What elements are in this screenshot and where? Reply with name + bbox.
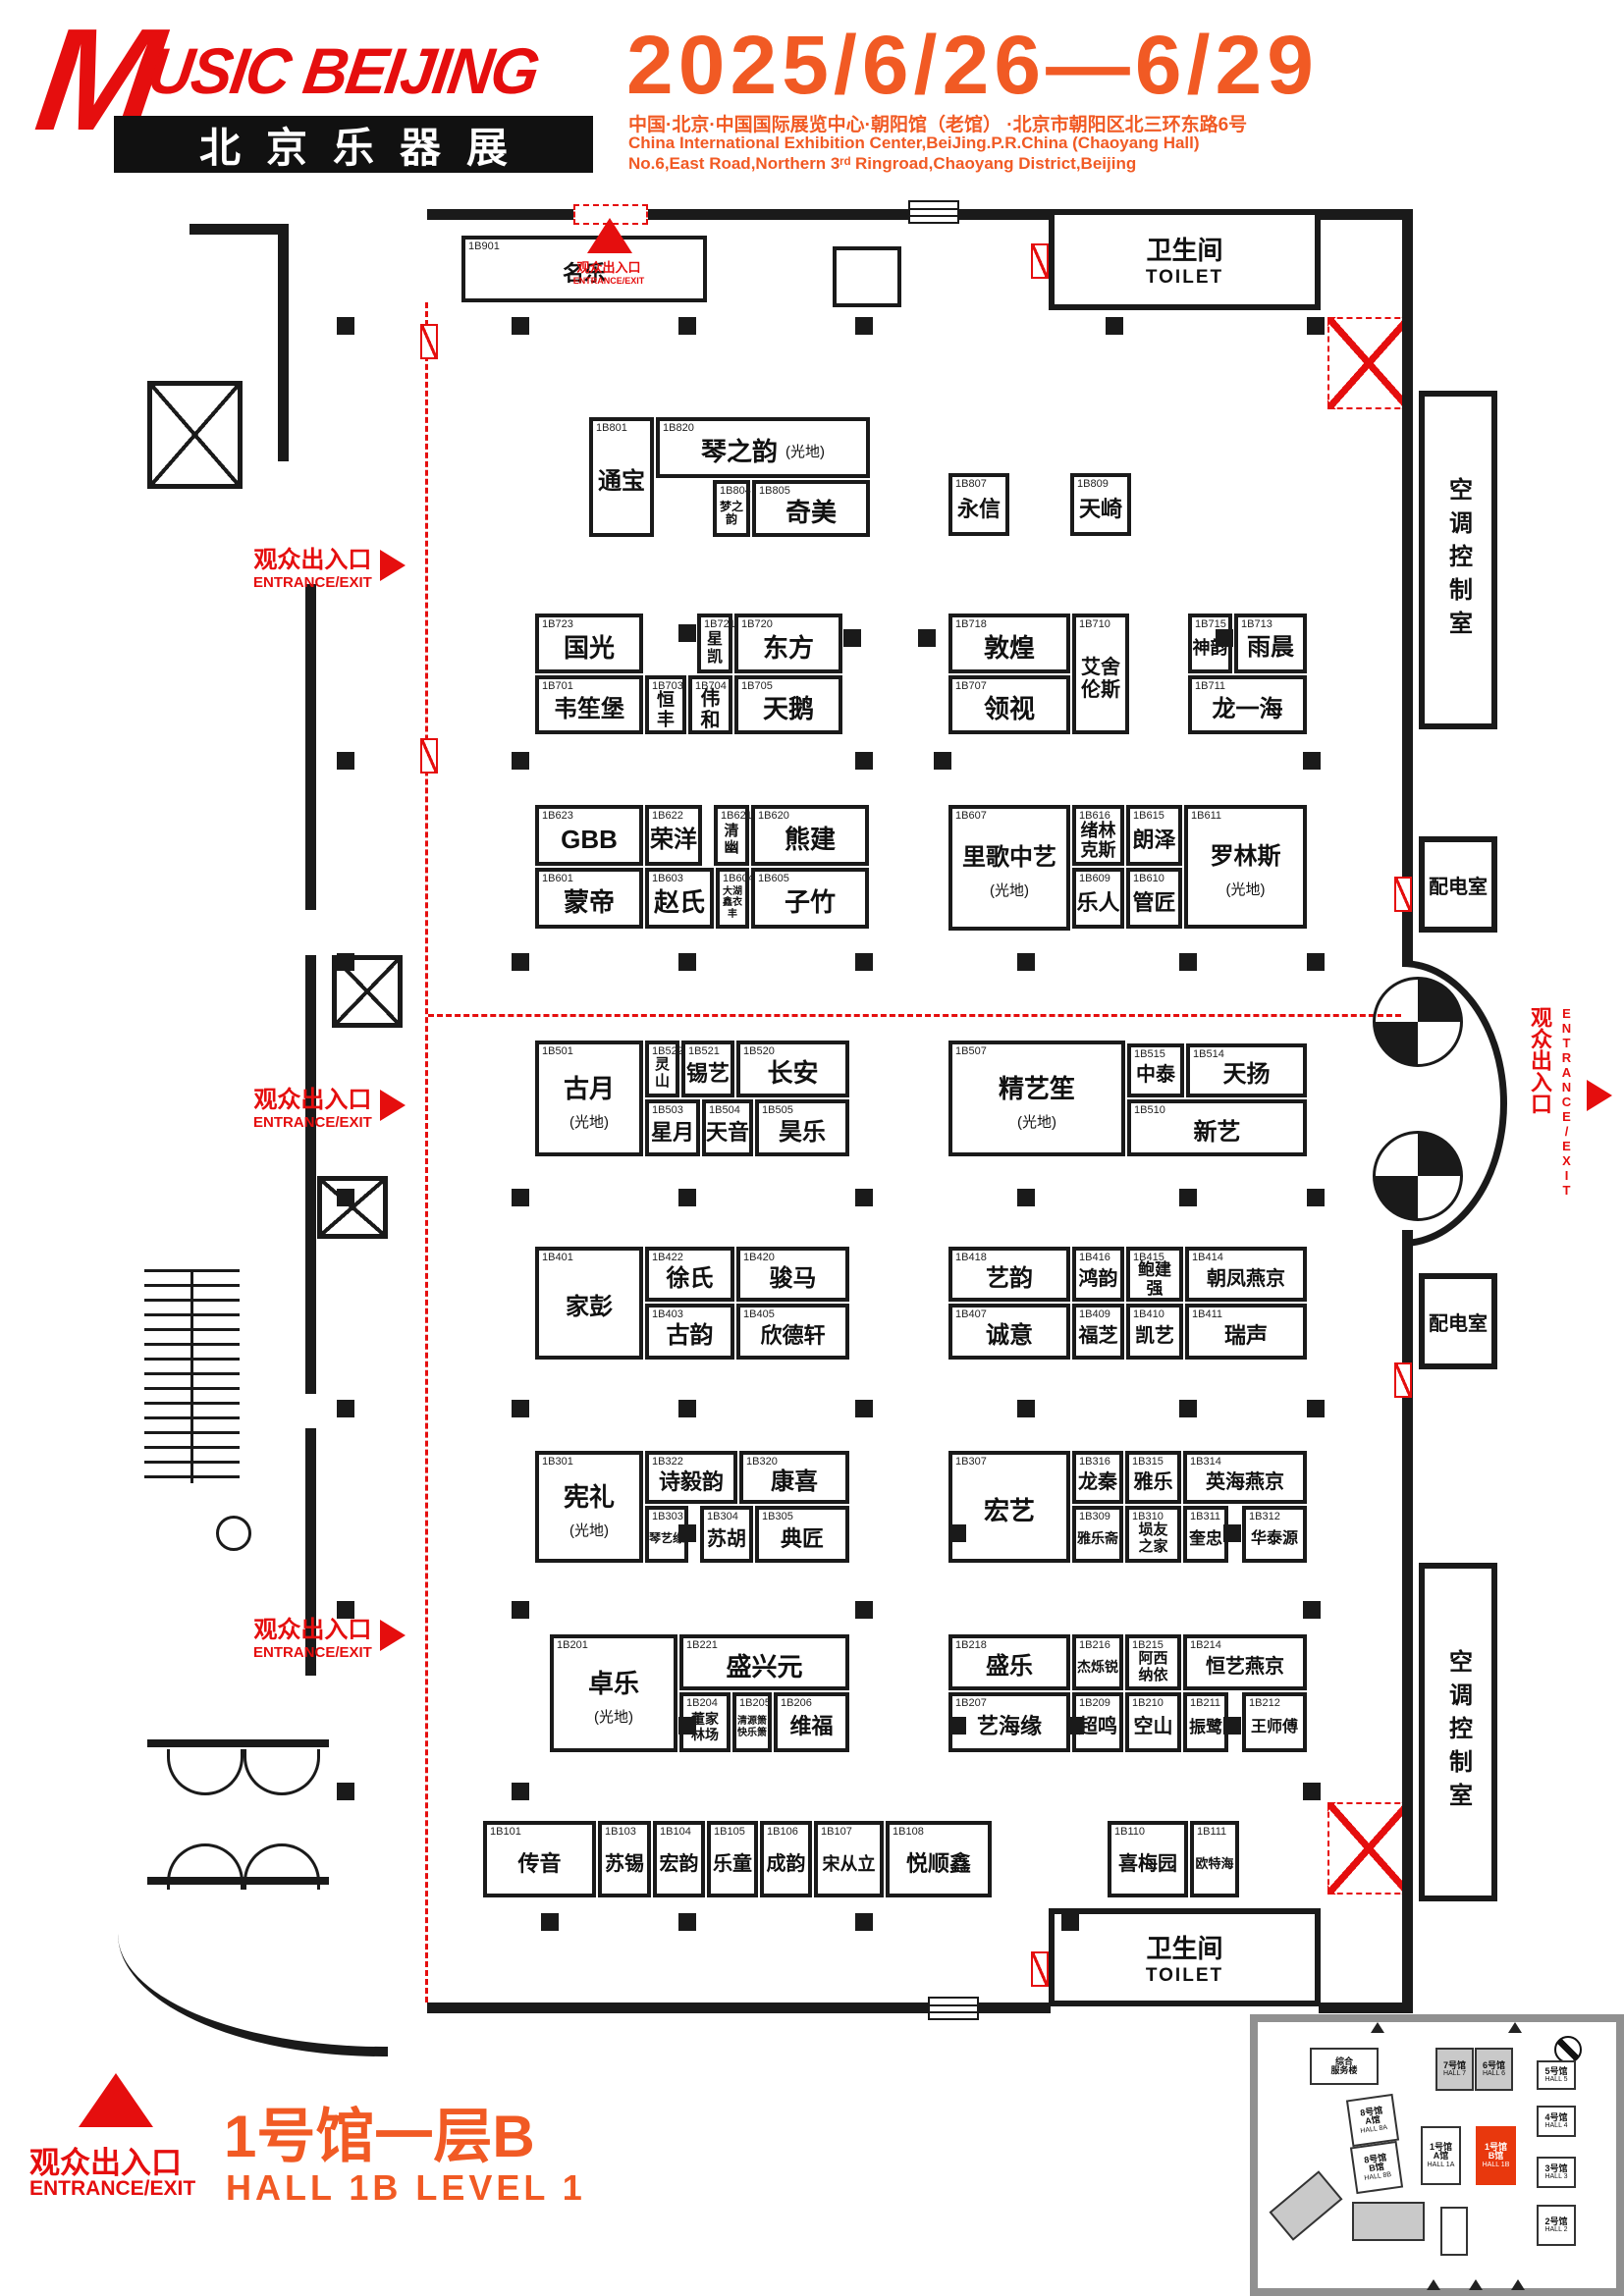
booth-name: 琴之韵(光地) xyxy=(660,421,866,474)
booth-name: 诗毅韵 xyxy=(649,1455,733,1500)
minimap-hall: 1号馆 A馆HALL 1A xyxy=(1421,2126,1461,2185)
booth-name: 蒙帝 xyxy=(539,872,639,925)
minimap-hall: 4号馆HALL 4 xyxy=(1537,2106,1576,2137)
pillar xyxy=(1017,953,1035,971)
booth-name: 子竹 xyxy=(755,872,865,925)
booth-1B510: 1B510新艺 xyxy=(1127,1099,1307,1156)
booth-name: 鸿韵 xyxy=(1076,1251,1120,1298)
booth-1B206: 1B206维福 xyxy=(774,1692,849,1752)
fire-door-icon xyxy=(1394,1362,1412,1398)
pillar xyxy=(337,1189,354,1206)
booth-1B411: 1B411瑞声 xyxy=(1185,1304,1307,1360)
wall-segment xyxy=(1402,209,1413,965)
pillar xyxy=(337,752,354,770)
booth-name: 中泰 xyxy=(1131,1047,1180,1094)
minimap-hall-cn: 7号馆 xyxy=(1443,2061,1466,2070)
toilet-top-en: TOILET xyxy=(1146,267,1223,289)
wall-segment xyxy=(305,584,316,910)
booth-1B215: 1B215阿西 纳依 xyxy=(1125,1634,1181,1690)
entrance-top-cn: 观众出入口 xyxy=(560,257,658,276)
entrance-cn: 观众出入口 xyxy=(253,1080,372,1114)
booth-name: 领视 xyxy=(952,679,1066,730)
booth-1B205: 1B205清源箫 快乐箫 xyxy=(732,1692,772,1752)
booth-note: (光地) xyxy=(594,1710,633,1727)
booth-1B314: 1B314英海燕京 xyxy=(1183,1451,1307,1504)
pillar xyxy=(1307,953,1325,971)
booth-1B616: 1B616绪林 克斯 xyxy=(1072,805,1124,866)
entrance-bottom-cn: 观众出入口 xyxy=(29,2138,182,2182)
minimap-hall: 3号馆HALL 3 xyxy=(1537,2157,1576,2188)
booth-1B710: 1B710艾舍 伦斯 xyxy=(1072,614,1129,734)
pillar xyxy=(918,629,936,647)
booth-1B422: 1B422徐氏 xyxy=(645,1247,734,1302)
minimap-hall: 6号馆HALL 6 xyxy=(1475,2048,1513,2091)
door-swing-icon xyxy=(167,1749,244,1795)
wall-segment xyxy=(638,209,1051,220)
booth-1B322: 1B322诗毅韵 xyxy=(645,1451,737,1504)
booth-1B101: 1B101传音 xyxy=(483,1821,596,1897)
wall-segment xyxy=(1319,209,1413,220)
booth-1B111: 1B111欧特海 xyxy=(1190,1821,1239,1897)
booth-name: 奇美 xyxy=(756,484,866,533)
pillar xyxy=(948,1524,966,1542)
booth-1B604: 1B604大湖 鑫衣丰 xyxy=(716,868,749,929)
booth-1B210: 1B210空山 xyxy=(1125,1692,1181,1752)
booth-name: 天扬 xyxy=(1190,1047,1303,1094)
booth-1B312: 1B312华泰源 xyxy=(1242,1506,1307,1563)
pillar xyxy=(512,1189,529,1206)
pillar xyxy=(512,317,529,335)
hall-title-cn: 1号馆一层B xyxy=(224,2089,535,2174)
entrance-right-arrow-icon xyxy=(1587,1080,1612,1111)
booth-name: GBB xyxy=(539,809,639,862)
minimap-hall-en: HALL 5 xyxy=(1544,2076,1567,2083)
booth-1B711: 1B711龙一海 xyxy=(1188,675,1307,734)
booth-1B601: 1B601蒙帝 xyxy=(535,868,643,929)
booth-1B521: 1B521锡艺 xyxy=(681,1041,734,1097)
booth-name: 梦之韵 xyxy=(717,484,746,533)
toilet-bottom: 卫生间 TOILET xyxy=(1049,1908,1321,2006)
pillar xyxy=(678,1524,696,1542)
pillar xyxy=(337,1783,354,1800)
hall-title-en: HALL 1B LEVEL 1 xyxy=(226,2167,586,2209)
pillar xyxy=(512,953,529,971)
pillar xyxy=(512,1783,529,1800)
minimap-hall-cn: 6号馆 xyxy=(1483,2061,1505,2070)
booth-1B414: 1B414朝凤燕京 xyxy=(1185,1247,1307,1302)
pillar xyxy=(855,752,873,770)
booth-note: (光地) xyxy=(785,445,825,461)
minimap-hall: 5号馆HALL 5 xyxy=(1537,2060,1576,2090)
minimap-hall-en: HALL 1B xyxy=(1483,2162,1510,2168)
booth-1B221: 1B221盛兴元 xyxy=(679,1634,849,1690)
booth-name: 徐氏 xyxy=(649,1251,731,1298)
booth-name: 灵山 xyxy=(649,1044,676,1094)
booth-1B515: 1B515中泰 xyxy=(1127,1043,1184,1097)
fire-line-left xyxy=(425,302,428,2002)
booth-1B807: 1B807永信 xyxy=(948,473,1009,536)
booth-name: 古韵 xyxy=(649,1308,731,1356)
booth-1B315: 1B315雅乐 xyxy=(1125,1451,1181,1504)
fire-door-icon xyxy=(1031,243,1049,279)
pillar xyxy=(1223,1717,1241,1735)
toilet-top: 卫生间 TOILET xyxy=(1049,209,1321,310)
pillar xyxy=(1303,752,1321,770)
ac-control-room-bottom: 空调控制室 xyxy=(1419,1563,1497,1901)
booth-1B409: 1B409福芝 xyxy=(1072,1304,1124,1360)
booth-1B622: 1B622荣洋 xyxy=(645,805,702,866)
vent-icon xyxy=(908,200,959,224)
booth-name: 古月(光地) xyxy=(539,1044,639,1152)
booth-1B504: 1B504天音 xyxy=(702,1099,753,1156)
pillar xyxy=(678,1913,696,1931)
entrance-top-label: 观众出入口 ENTRANCE/EXIT xyxy=(560,257,658,286)
minimap-hall-en: HALL 6 xyxy=(1483,2070,1505,2077)
pillar xyxy=(678,1189,696,1206)
reserved-zone-icon xyxy=(1327,317,1410,409)
booth-1B605: 1B605子竹 xyxy=(751,868,869,929)
booth-name: 天崎 xyxy=(1074,477,1127,532)
compass-icon xyxy=(1554,2036,1582,2063)
pillar xyxy=(948,1717,966,1735)
booth-name: 朝凤燕京 xyxy=(1189,1251,1303,1298)
pillar xyxy=(1106,317,1123,335)
pillar xyxy=(855,1189,873,1206)
booth-name: 敦煌 xyxy=(952,617,1066,669)
booth-1B507: 1B507精艺笙(光地) xyxy=(948,1041,1125,1156)
booth-name: 星凯 xyxy=(701,617,729,669)
pillar xyxy=(1061,1913,1079,1931)
minimap-hall-cn: 1号馆 A馆 xyxy=(1430,2143,1452,2162)
booth-name: 天鹅 xyxy=(738,679,839,730)
booth-1B520: 1B520长安 xyxy=(736,1041,849,1097)
booth-name: 传音 xyxy=(487,1825,592,1894)
minimap-hall: 8号馆 B馆HALL 8B xyxy=(1350,2141,1403,2194)
booth-1B305: 1B305典匠 xyxy=(755,1506,849,1563)
booth-name: 雅乐 xyxy=(1129,1455,1177,1500)
minimap-hall: 8号馆 A馆HALL 8A xyxy=(1346,2094,1399,2147)
booth-name: 赵氏 xyxy=(649,872,710,925)
booth-1B310: 1B310埙友 之家 xyxy=(1125,1506,1181,1563)
pillar xyxy=(855,1601,873,1619)
booth-name: 悦顺鑫 xyxy=(890,1825,988,1894)
booth-name: 星月 xyxy=(649,1103,696,1152)
booth-name: 荣洋 xyxy=(649,809,698,862)
booth-1B503: 1B503星月 xyxy=(645,1099,700,1156)
booth-name: 宏艺 xyxy=(952,1455,1066,1559)
ac-control-room-top: 空调控制室 xyxy=(1419,391,1497,729)
entrance-en: ENTRANCE/EXIT xyxy=(253,574,372,591)
booth-name: 埙友 之家 xyxy=(1129,1510,1177,1559)
booth-1B214: 1B214恒艺燕京 xyxy=(1183,1634,1307,1690)
elevator-icon xyxy=(147,381,243,489)
fire-line-mid xyxy=(428,1014,1401,1017)
booth-name: 乐人 xyxy=(1076,872,1120,925)
minimap-hall: 综合 服务楼 xyxy=(1310,2048,1379,2085)
booth-name: 艾舍 伦斯 xyxy=(1076,617,1125,730)
booth-1B418: 1B418艺韵 xyxy=(948,1247,1070,1302)
wall-segment xyxy=(1402,1230,1413,2013)
booth-name: 欣德轩 xyxy=(740,1308,845,1356)
booth-name: 空山 xyxy=(1129,1696,1177,1748)
booth-1B620: 1B620熊建 xyxy=(751,805,869,866)
pillar xyxy=(337,1400,354,1417)
minimap-hall xyxy=(1440,2207,1468,2256)
pillar xyxy=(1307,1189,1325,1206)
booth-name: 苏胡 xyxy=(704,1510,749,1559)
booth-name: 宏韵 xyxy=(657,1825,701,1894)
booth-name: 王师傅 xyxy=(1246,1696,1303,1748)
booth-name: 福芝 xyxy=(1076,1308,1120,1356)
door-swing-icon xyxy=(244,1843,320,1890)
booth-1B416: 1B416鸿韵 xyxy=(1072,1247,1124,1302)
entrance-right-en: ENTRANCE/EXIT xyxy=(1559,1006,1574,1198)
booth-name: 通宝 xyxy=(593,421,650,533)
power-room-2: 配电室 xyxy=(1419,1273,1497,1369)
gate-icon xyxy=(1511,2279,1525,2290)
vent-icon xyxy=(928,1997,979,2020)
booth-name: 艺韵 xyxy=(952,1251,1066,1298)
booth-1B218: 1B218盛乐 xyxy=(948,1634,1070,1690)
booth-1B607: 1B607里歌中艺(光地) xyxy=(948,805,1070,931)
booth-1B309: 1B309雅乐斋 xyxy=(1072,1506,1123,1563)
pillar xyxy=(678,1717,696,1735)
minimap-hall: 2号馆HALL 2 xyxy=(1537,2205,1576,2246)
booth-1B707: 1B707领视 xyxy=(948,675,1070,734)
entrance-arrow-icon xyxy=(380,1620,406,1651)
booth-name: 康喜 xyxy=(743,1455,845,1500)
entrance-bottom-en: ENTRANCE/EXIT xyxy=(29,2177,195,2201)
minimap-hall-en: HALL 2 xyxy=(1544,2226,1567,2233)
booth-1B201: 1B201卓乐(光地) xyxy=(550,1634,677,1752)
booth-1B522: 1B522灵山 xyxy=(645,1041,679,1097)
booth-name: 杰烁锐 xyxy=(1076,1638,1119,1686)
gate-icon xyxy=(1427,2279,1440,2290)
minimap-hall-cn: 3号馆 xyxy=(1544,2164,1567,2173)
pillar xyxy=(512,1601,529,1619)
booth-1B311: 1B311奎忠 xyxy=(1183,1506,1228,1563)
pillar xyxy=(1017,1400,1035,1417)
booth-name: 盛乐 xyxy=(952,1638,1066,1686)
booth-1B615: 1B615朗泽 xyxy=(1126,805,1182,866)
booth-1B108: 1B108悦顺鑫 xyxy=(886,1821,992,1897)
booth-name: 伟和 xyxy=(692,679,729,730)
entrance-top-arrow-icon xyxy=(587,218,632,253)
booth-note: (光地) xyxy=(569,1115,609,1132)
fire-door-icon xyxy=(1031,1951,1049,1987)
entrance-right-cn: 观众出入口 xyxy=(1524,1006,1555,1114)
booth-1B809: 1B809天崎 xyxy=(1070,473,1131,536)
entrance-cn: 观众出入口 xyxy=(253,540,372,574)
minimap-hall-cn: 5号馆 xyxy=(1544,2067,1567,2076)
pillar xyxy=(337,317,354,335)
pillar xyxy=(1307,317,1325,335)
booth-name: 朗泽 xyxy=(1130,809,1178,862)
wall-segment xyxy=(189,224,289,235)
fire-door-icon xyxy=(420,324,438,359)
power-room-1: 配电室 xyxy=(1419,836,1497,933)
booth-1B415: 1B415鲍建强 xyxy=(1126,1247,1183,1302)
booth-1B621: 1B621清幽 xyxy=(714,805,749,866)
booth-1B721: 1B721星凯 xyxy=(697,614,732,673)
door-swing-icon xyxy=(167,1843,244,1890)
wall-segment xyxy=(305,955,316,1394)
booth-name: 雅乐斋 xyxy=(1076,1510,1119,1559)
curved-wall xyxy=(118,1919,388,2056)
entrance-left-2: 观众出入口 ENTRANCE/EXIT xyxy=(253,1080,406,1131)
door-swing-icon xyxy=(244,1749,320,1795)
booth-note: (光地) xyxy=(569,1523,609,1540)
booth-1B501: 1B501古月(光地) xyxy=(535,1041,643,1156)
floor-plan: 卫生间 TOILET 卫生间 TOILET 空调控制室 配电室 配电室 空调控制… xyxy=(0,0,1624,2296)
booth-1B106: 1B106成韵 xyxy=(760,1821,812,1897)
booth-name: 罗林斯(光地) xyxy=(1188,809,1303,925)
booth-1B720: 1B720东方 xyxy=(734,614,842,673)
booth-1B718: 1B718敦煌 xyxy=(948,614,1070,673)
entrance-cn: 观众出入口 xyxy=(253,1610,372,1644)
booth-name: 清幽 xyxy=(718,809,745,862)
pillar xyxy=(1223,1524,1241,1542)
booth-1B723: 1B723国光 xyxy=(535,614,643,673)
pillar xyxy=(855,953,873,971)
booth-name: 苏锡 xyxy=(602,1825,647,1894)
booth-1B623: 1B623GBB xyxy=(535,805,643,866)
pillar xyxy=(855,317,873,335)
wall-segment xyxy=(278,224,289,461)
pillar xyxy=(678,624,696,642)
booth-name: 艺海缘 xyxy=(952,1696,1066,1748)
booth-1B805: 1B805奇美 xyxy=(752,480,870,537)
booth-name: 典匠 xyxy=(759,1510,845,1559)
pillar xyxy=(541,1913,559,1931)
booth-name: 恒丰 xyxy=(649,679,682,730)
booth-1B216: 1B216杰烁锐 xyxy=(1072,1634,1123,1690)
booth-1B801: 1B801通宝 xyxy=(589,417,654,537)
booth-1B514: 1B514天扬 xyxy=(1186,1043,1307,1097)
booth-1B405: 1B405欣德轩 xyxy=(736,1304,849,1360)
reserved-zone-icon xyxy=(1327,1802,1410,1895)
pillar xyxy=(678,953,696,971)
booth-name: 瑞声 xyxy=(1189,1308,1303,1356)
pillar xyxy=(1179,953,1197,971)
booth-name: 精艺笙(光地) xyxy=(952,1044,1121,1152)
booth-name: 里歌中艺(光地) xyxy=(952,809,1066,927)
booth-name: 龙一海 xyxy=(1192,679,1303,730)
pillar xyxy=(678,317,696,335)
booth-name: 大湖 鑫衣丰 xyxy=(720,872,745,925)
booth-name: 永信 xyxy=(952,477,1005,532)
booth-1B611: 1B611罗林斯(光地) xyxy=(1184,805,1307,929)
entrance-left-1: 观众出入口 ENTRANCE/EXIT xyxy=(253,540,406,591)
booth-name: 恒艺燕京 xyxy=(1187,1638,1303,1686)
booth-name: 东方 xyxy=(738,617,839,669)
booth-note: (光地) xyxy=(1017,1115,1056,1132)
entrance-en: ENTRANCE/EXIT xyxy=(253,1644,372,1661)
booth-name: 韦笙堡 xyxy=(539,679,639,730)
toilet-bottom-cn: 卫生间 xyxy=(1146,1929,1222,1965)
booth-note: (光地) xyxy=(990,883,1029,900)
booth-1B212: 1B212王师傅 xyxy=(1242,1692,1307,1752)
booth-1B407: 1B407诚意 xyxy=(948,1304,1070,1360)
booth-1B820: 1B820琴之韵(光地) xyxy=(656,417,870,478)
entrance-bottom-arrow-icon xyxy=(79,2073,153,2127)
pillar xyxy=(843,629,861,647)
room xyxy=(833,246,901,307)
booth-name: 阿西 纳依 xyxy=(1129,1638,1177,1686)
booth-name: 家彭 xyxy=(539,1251,639,1356)
minimap-hall: 1号馆 B馆HALL 1B xyxy=(1476,2126,1516,2185)
booth-1B410: 1B410凯艺 xyxy=(1126,1304,1183,1360)
booth-1B107: 1B107宋从立 xyxy=(814,1821,884,1897)
gate-icon xyxy=(1508,2022,1522,2033)
page: M USIC BEIJING 北京乐器展 2025/6/26—6/29 中国·北… xyxy=(0,0,1624,2296)
booth-name: 新艺 xyxy=(1131,1103,1303,1152)
minimap-hall-en: HALL 1A xyxy=(1428,2162,1455,2168)
wall-segment xyxy=(147,1739,329,1747)
pillar xyxy=(1179,1189,1197,1206)
booth-name: 宋从立 xyxy=(818,1825,880,1894)
booth-name: 振鹭 xyxy=(1187,1696,1224,1748)
entrance-arrow-icon xyxy=(380,1090,406,1121)
booth-name: 诚意 xyxy=(952,1308,1066,1356)
toilet-bottom-en: TOILET xyxy=(1146,1965,1223,1987)
pillar xyxy=(1303,1601,1321,1619)
booth-name: 鲍建强 xyxy=(1130,1251,1179,1298)
booth-1B103: 1B103苏锡 xyxy=(598,1821,651,1897)
entrance-en: ENTRANCE/EXIT xyxy=(253,1114,372,1131)
pillar xyxy=(1017,1189,1035,1206)
booth-1B804: 1B804梦之韵 xyxy=(713,480,750,537)
booth-name: 凯艺 xyxy=(1130,1308,1179,1356)
minimap-hall-en: HALL 7 xyxy=(1443,2070,1466,2077)
booth-1B713: 1B713雨晨 xyxy=(1234,614,1307,673)
booth-name: 华泰源 xyxy=(1246,1510,1303,1559)
pillar xyxy=(1216,629,1233,647)
booth-1B301: 1B301宪礼(光地) xyxy=(535,1451,643,1563)
booth-1B105: 1B105乐童 xyxy=(707,1821,758,1897)
overview-minimap: 综合 服务楼7号馆HALL 76号馆HALL 65号馆HALL 58号馆 A馆H… xyxy=(1250,2014,1624,2296)
minimap-hall: 7号馆HALL 7 xyxy=(1435,2048,1474,2091)
minimap-hall-en: HALL 3 xyxy=(1544,2173,1567,2180)
booth-name: 管匠 xyxy=(1130,872,1178,925)
booth-name: 长安 xyxy=(740,1044,845,1094)
booth-1B401: 1B401家彭 xyxy=(535,1247,643,1360)
booth-1B610: 1B610管匠 xyxy=(1126,868,1182,929)
booth-1B207: 1B207艺海缘 xyxy=(948,1692,1070,1752)
booth-1B705: 1B705天鹅 xyxy=(734,675,842,734)
pillar xyxy=(337,953,354,971)
pillar xyxy=(934,752,951,770)
booth-1B609: 1B609乐人 xyxy=(1072,868,1124,929)
booth-name: 锡艺 xyxy=(685,1044,731,1094)
minimap-hall xyxy=(1270,2170,1343,2241)
pillar xyxy=(855,1400,873,1417)
booth-name: 龙秦 xyxy=(1076,1455,1119,1500)
booth-1B505: 1B505昊乐 xyxy=(755,1099,849,1156)
booth-name: 奎忠 xyxy=(1187,1510,1224,1559)
booth-name: 乐童 xyxy=(711,1825,754,1894)
revolving-door-icon xyxy=(1373,1131,1463,1221)
booth-1B603: 1B603赵氏 xyxy=(645,868,714,929)
booth-1B403: 1B403古韵 xyxy=(645,1304,734,1360)
booth-name: 英海燕京 xyxy=(1187,1455,1303,1500)
booth-name: 国光 xyxy=(539,617,639,669)
booth-name: 宪礼(光地) xyxy=(539,1455,639,1559)
minimap-hall-cn: 4号馆 xyxy=(1544,2113,1567,2122)
pillar xyxy=(678,1400,696,1417)
booth-name: 喜梅园 xyxy=(1111,1825,1184,1894)
gate-icon xyxy=(1371,2022,1384,2033)
